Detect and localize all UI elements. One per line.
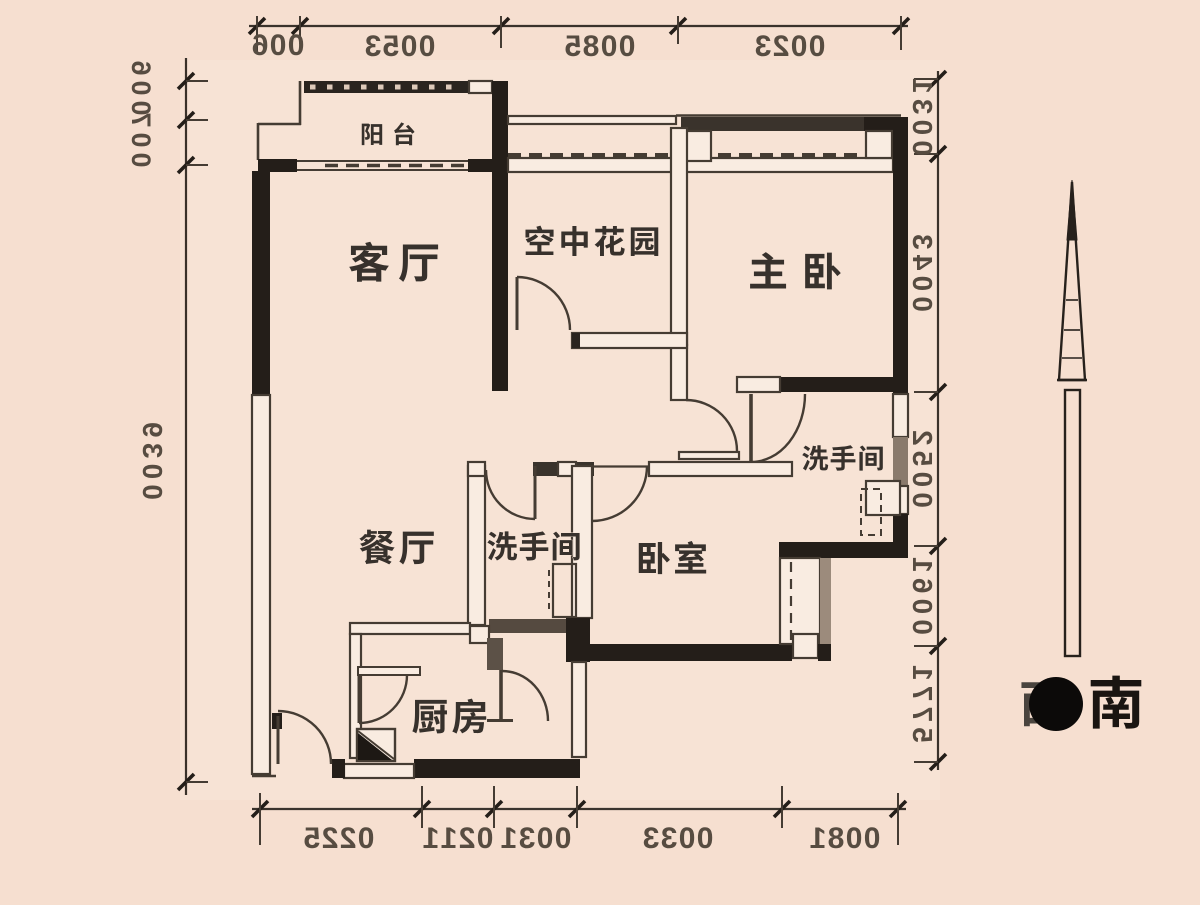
svg-text:0: 0: [537, 822, 554, 855]
svg-text:1: 1: [441, 822, 458, 855]
svg-text:0: 0: [126, 80, 156, 95]
svg-text:6: 6: [126, 60, 156, 75]
svg-text:2: 2: [773, 30, 790, 63]
svg-text:6: 6: [907, 578, 938, 594]
svg-text:1: 1: [501, 822, 518, 855]
svg-text:0: 0: [477, 822, 494, 855]
svg-text:3: 3: [365, 30, 382, 63]
svg-text:5: 5: [565, 30, 582, 63]
svg-text:0: 0: [791, 30, 808, 63]
svg-text:0: 0: [846, 822, 863, 855]
svg-text:3: 3: [643, 822, 660, 855]
svg-text:0: 0: [864, 822, 881, 855]
svg-text:0: 0: [419, 30, 436, 63]
svg-text:8: 8: [583, 30, 600, 63]
svg-text:0: 0: [907, 120, 938, 136]
svg-text:3: 3: [519, 822, 536, 855]
svg-text:0: 0: [907, 472, 938, 488]
svg-text:2: 2: [340, 822, 357, 855]
svg-text:0: 0: [697, 822, 714, 855]
svg-text:0: 0: [907, 619, 938, 635]
svg-text:3: 3: [661, 822, 678, 855]
svg-text:3: 3: [137, 443, 168, 459]
svg-text:3: 3: [755, 30, 772, 63]
svg-text:0: 0: [288, 29, 305, 62]
svg-text:1: 1: [423, 822, 440, 855]
svg-text:1: 1: [810, 822, 827, 855]
svg-text:0: 0: [619, 30, 636, 63]
svg-text:0: 0: [907, 599, 938, 615]
svg-text:4: 4: [907, 254, 938, 270]
svg-text:1: 1: [907, 78, 938, 94]
svg-text:0: 0: [126, 152, 156, 167]
svg-text:2: 2: [322, 822, 339, 855]
svg-text:0: 0: [137, 484, 168, 500]
svg-text:0: 0: [126, 132, 156, 147]
svg-text:3: 3: [907, 234, 938, 250]
svg-text:1: 1: [907, 557, 938, 573]
svg-text:0: 0: [907, 276, 938, 292]
svg-text:0: 0: [358, 822, 375, 855]
svg-text:0: 0: [907, 492, 938, 508]
svg-text:2: 2: [459, 822, 476, 855]
svg-text:5: 5: [304, 822, 321, 855]
svg-text:6: 6: [252, 29, 269, 62]
svg-text:3: 3: [907, 99, 938, 115]
svg-text:5: 5: [907, 451, 938, 467]
svg-text:2: 2: [907, 430, 938, 446]
svg-text:7: 7: [907, 686, 938, 702]
svg-text:0: 0: [137, 464, 168, 480]
svg-text:0: 0: [679, 822, 696, 855]
svg-text:0: 0: [907, 140, 938, 156]
svg-text:5: 5: [907, 727, 938, 743]
svg-text:7: 7: [907, 707, 938, 723]
svg-text:1: 1: [907, 665, 938, 681]
svg-text:5: 5: [383, 30, 400, 63]
svg-text:7: 7: [126, 112, 156, 127]
svg-text:0: 0: [907, 296, 938, 312]
svg-text:9: 9: [137, 422, 168, 438]
svg-text:0: 0: [270, 29, 287, 62]
svg-text:0: 0: [601, 30, 618, 63]
svg-text:0: 0: [555, 822, 572, 855]
svg-text:0: 0: [809, 30, 826, 63]
svg-text:8: 8: [828, 822, 845, 855]
svg-text:0: 0: [401, 30, 418, 63]
